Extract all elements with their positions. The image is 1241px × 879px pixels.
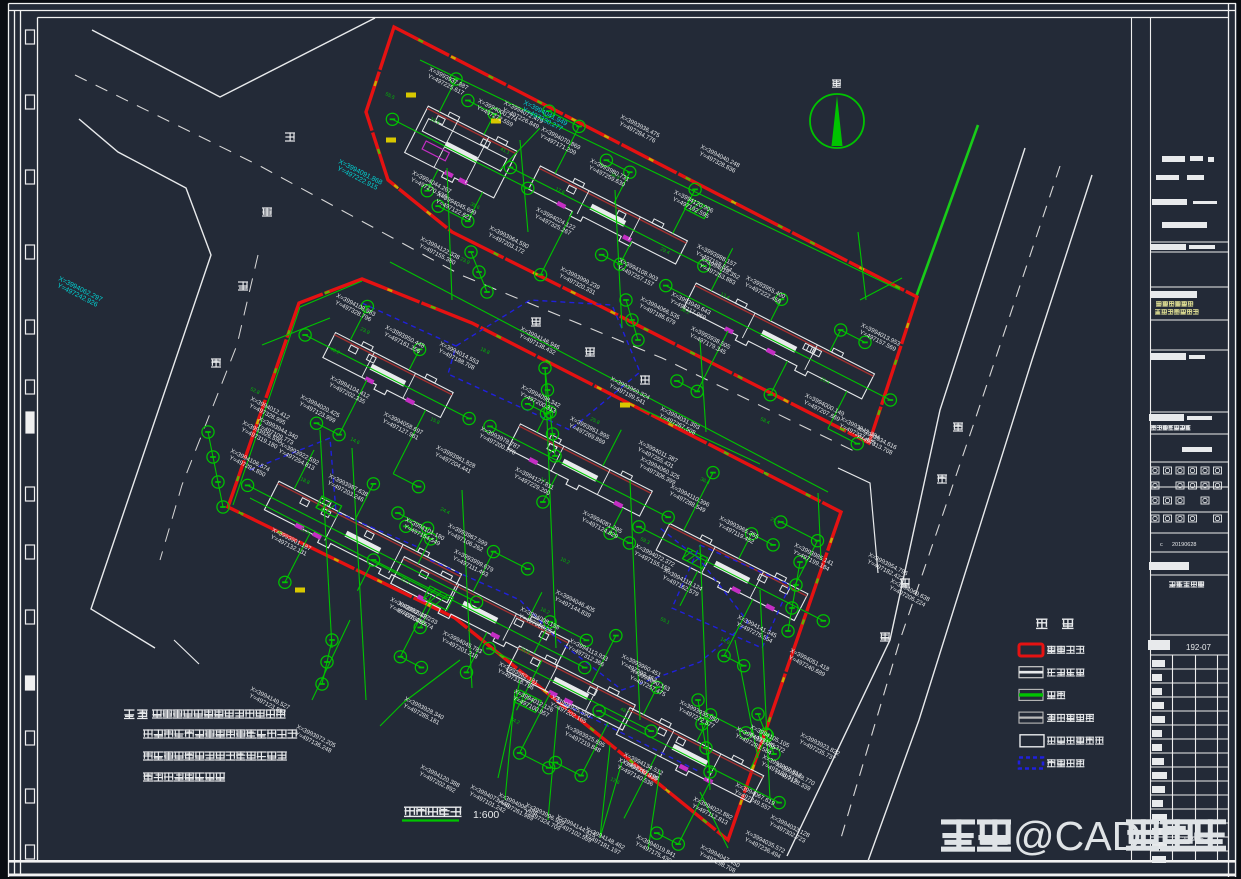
svg-text:1:600: 1:600 [473, 809, 499, 821]
svg-text:192-07: 192-07 [1186, 643, 1211, 652]
svg-text:@CAD: @CAD [1013, 813, 1141, 859]
svg-text:20190628: 20190628 [1172, 542, 1196, 548]
svg-text:c: c [1160, 542, 1163, 548]
